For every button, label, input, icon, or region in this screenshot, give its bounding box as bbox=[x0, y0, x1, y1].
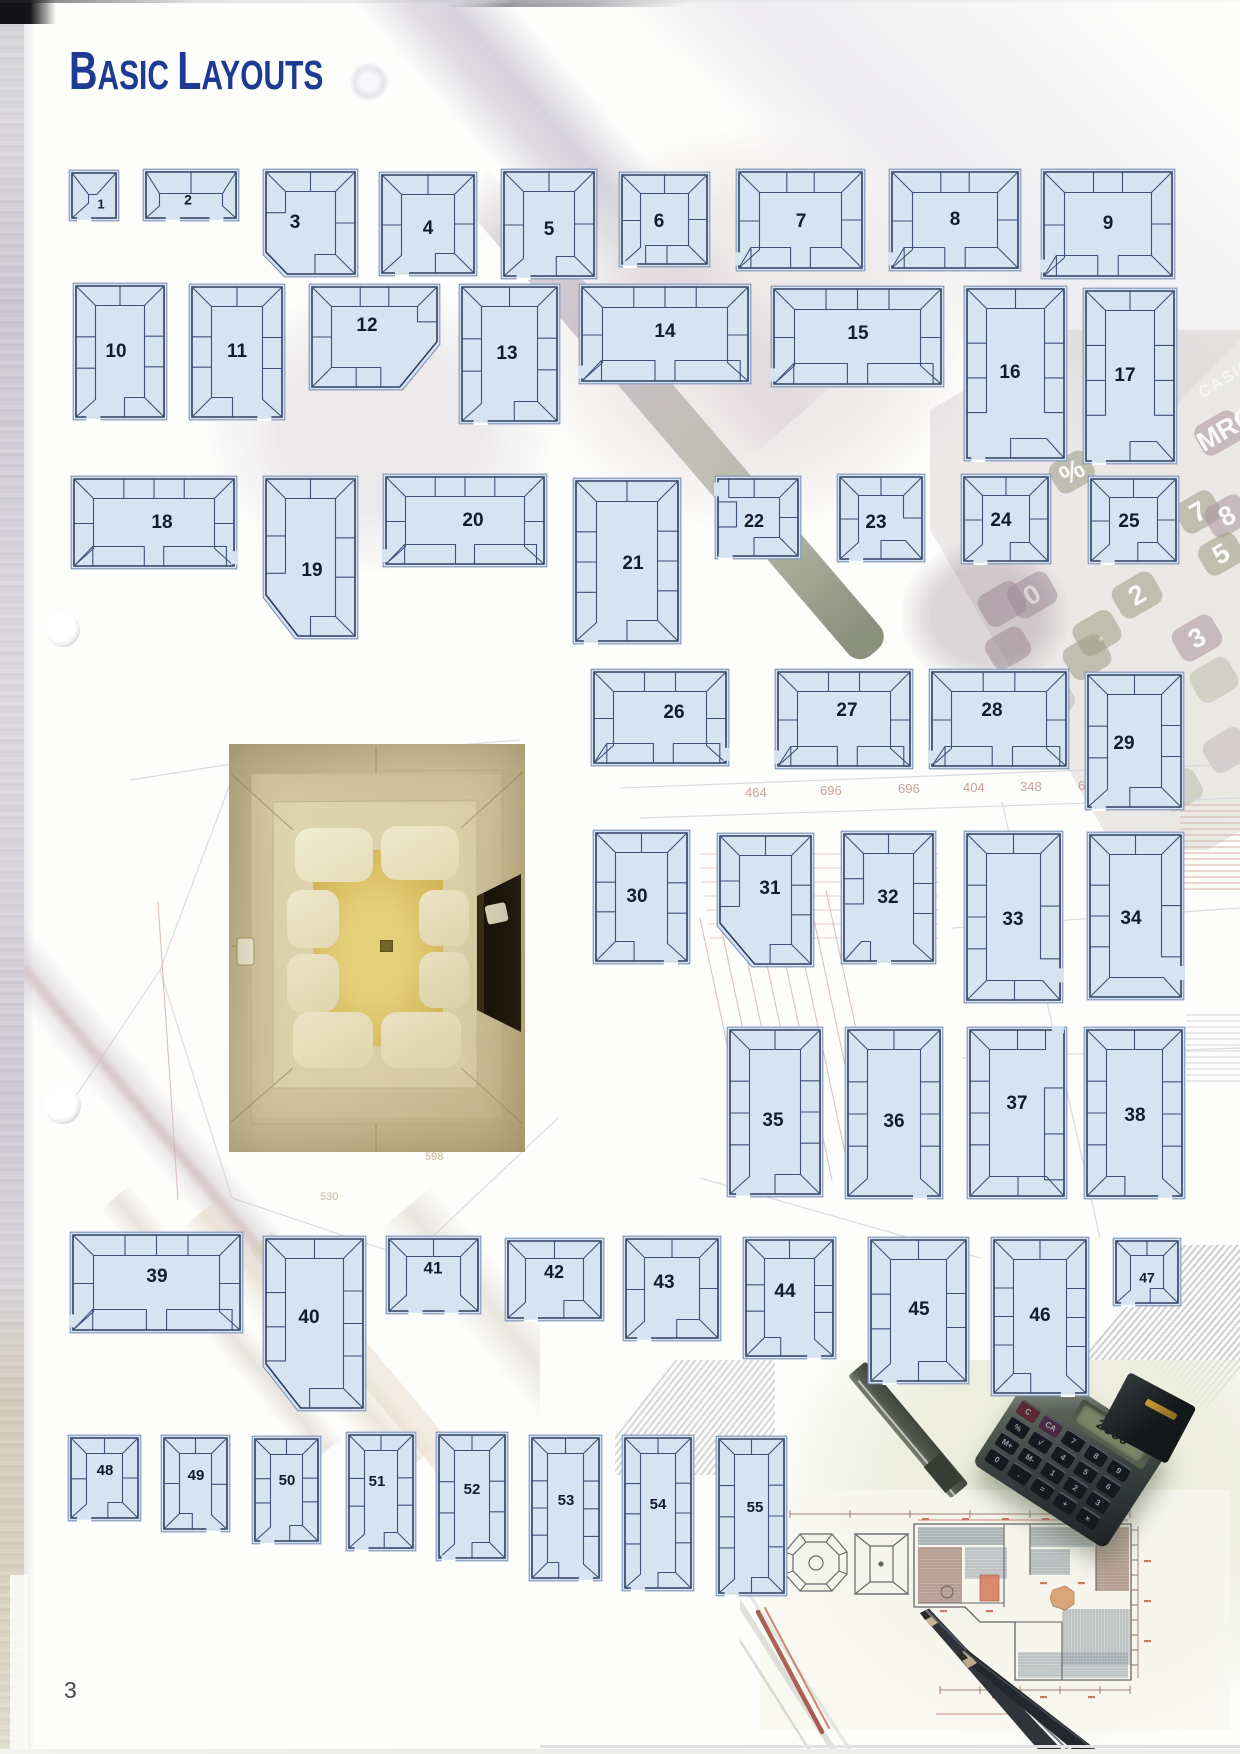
svg-text:14: 14 bbox=[654, 321, 676, 342]
svg-text:2: 2 bbox=[184, 192, 192, 208]
svg-text:12: 12 bbox=[356, 315, 377, 336]
svg-text:32: 32 bbox=[877, 887, 898, 908]
svg-text:48: 48 bbox=[97, 1462, 114, 1479]
svg-text:5: 5 bbox=[544, 219, 555, 240]
svg-text:47: 47 bbox=[1139, 1270, 1155, 1286]
svg-text:3: 3 bbox=[290, 212, 301, 233]
svg-text:53: 53 bbox=[558, 1492, 575, 1509]
svg-text:51: 51 bbox=[369, 1473, 386, 1490]
svg-text:7: 7 bbox=[796, 211, 807, 232]
svg-text:27: 27 bbox=[836, 700, 857, 721]
svg-text:55: 55 bbox=[747, 1499, 764, 1516]
svg-text:40: 40 bbox=[298, 1307, 319, 1328]
svg-text:42: 42 bbox=[544, 1262, 564, 1282]
svg-text:38: 38 bbox=[1124, 1105, 1145, 1126]
svg-text:49: 49 bbox=[188, 1467, 205, 1484]
svg-text:8: 8 bbox=[950, 209, 961, 230]
svg-text:26: 26 bbox=[663, 702, 684, 723]
svg-text:20: 20 bbox=[462, 510, 483, 531]
svg-text:35: 35 bbox=[762, 1110, 784, 1131]
svg-text:46: 46 bbox=[1029, 1305, 1050, 1326]
svg-text:50: 50 bbox=[279, 1472, 296, 1489]
svg-text:41: 41 bbox=[424, 1258, 443, 1277]
svg-text:24: 24 bbox=[990, 510, 1012, 531]
svg-text:44: 44 bbox=[774, 1281, 796, 1302]
svg-text:30: 30 bbox=[626, 886, 647, 907]
svg-text:28: 28 bbox=[981, 700, 1002, 721]
svg-text:13: 13 bbox=[496, 343, 517, 364]
svg-text:54: 54 bbox=[650, 1496, 667, 1513]
svg-text:52: 52 bbox=[464, 1481, 481, 1498]
svg-text:31: 31 bbox=[759, 878, 781, 899]
svg-text:45: 45 bbox=[908, 1299, 930, 1320]
svg-text:1: 1 bbox=[97, 196, 104, 211]
svg-text:4: 4 bbox=[423, 218, 434, 239]
svg-text:22: 22 bbox=[744, 511, 764, 531]
svg-text:17: 17 bbox=[1114, 365, 1135, 386]
svg-text:23: 23 bbox=[865, 512, 886, 533]
svg-text:10: 10 bbox=[105, 341, 126, 362]
svg-text:19: 19 bbox=[301, 560, 322, 581]
svg-text:39: 39 bbox=[146, 1266, 167, 1287]
svg-text:11: 11 bbox=[227, 341, 248, 362]
svg-text:43: 43 bbox=[653, 1272, 674, 1293]
svg-text:33: 33 bbox=[1002, 909, 1023, 930]
svg-text:6: 6 bbox=[654, 211, 665, 232]
svg-text:34: 34 bbox=[1120, 908, 1142, 929]
svg-text:25: 25 bbox=[1118, 511, 1140, 532]
svg-text:16: 16 bbox=[999, 362, 1020, 383]
svg-text:29: 29 bbox=[1113, 733, 1134, 754]
svg-text:37: 37 bbox=[1006, 1093, 1027, 1114]
svg-text:36: 36 bbox=[883, 1111, 904, 1132]
svg-text:18: 18 bbox=[151, 512, 172, 533]
svg-text:21: 21 bbox=[622, 553, 644, 574]
svg-text:9: 9 bbox=[1103, 213, 1114, 234]
svg-text:15: 15 bbox=[847, 323, 869, 344]
